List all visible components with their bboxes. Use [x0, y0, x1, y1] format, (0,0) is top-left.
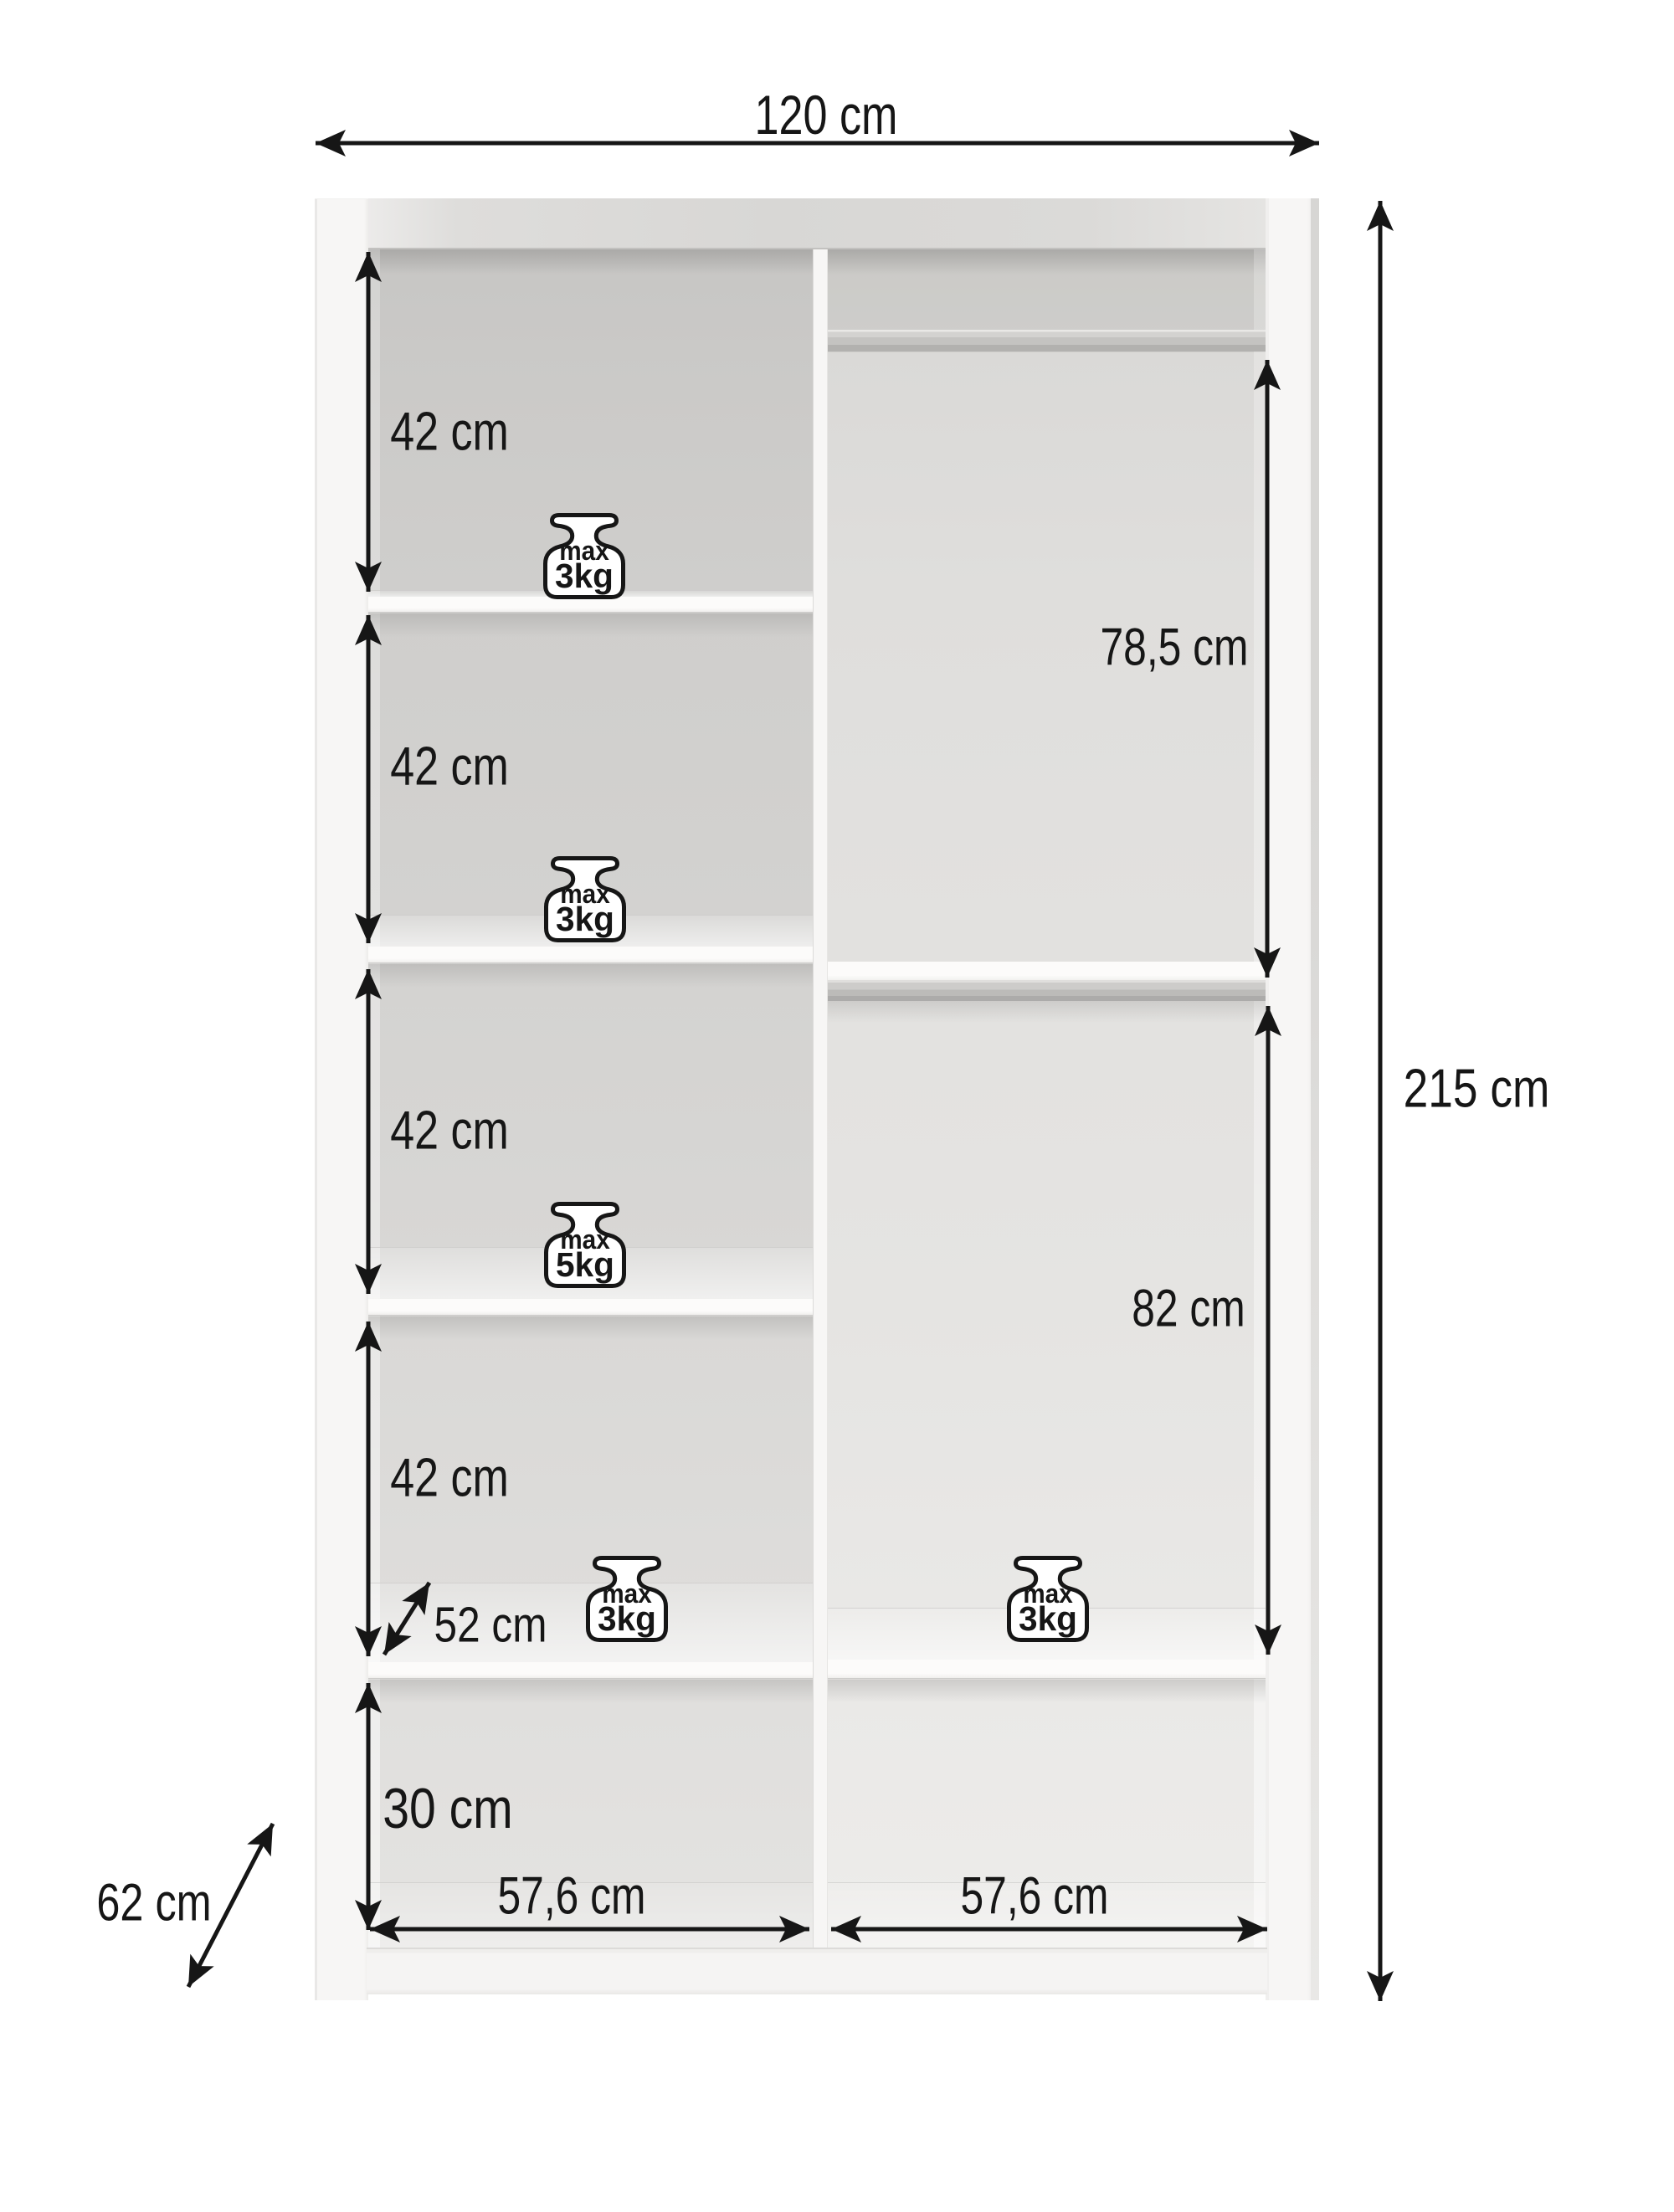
svg-text:3kg: 3kg	[1019, 1599, 1077, 1638]
svg-text:3kg: 3kg	[598, 1599, 656, 1638]
svg-text:3kg: 3kg	[556, 900, 614, 938]
svg-text:5kg: 5kg	[556, 1245, 614, 1284]
svg-text:3kg: 3kg	[555, 557, 614, 595]
